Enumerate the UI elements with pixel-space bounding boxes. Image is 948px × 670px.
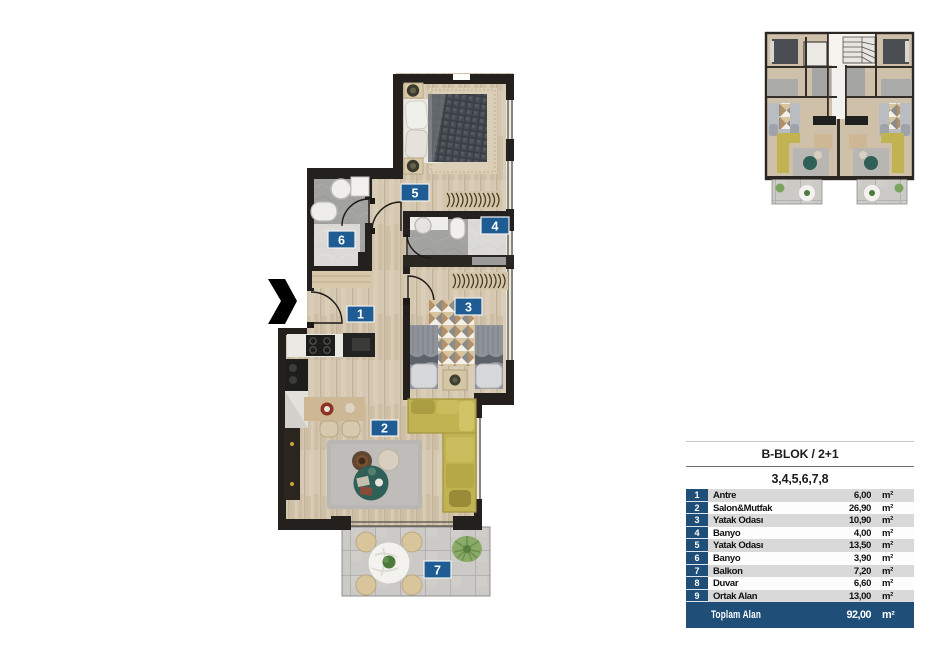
svg-text:3: 3 xyxy=(465,301,472,315)
svg-text:4: 4 xyxy=(492,220,499,234)
svg-text:2: 2 xyxy=(381,422,388,436)
svg-text:5: 5 xyxy=(412,187,419,201)
svg-text:6: 6 xyxy=(338,234,345,248)
svg-text:1: 1 xyxy=(357,308,364,322)
svg-text:7: 7 xyxy=(434,564,441,578)
